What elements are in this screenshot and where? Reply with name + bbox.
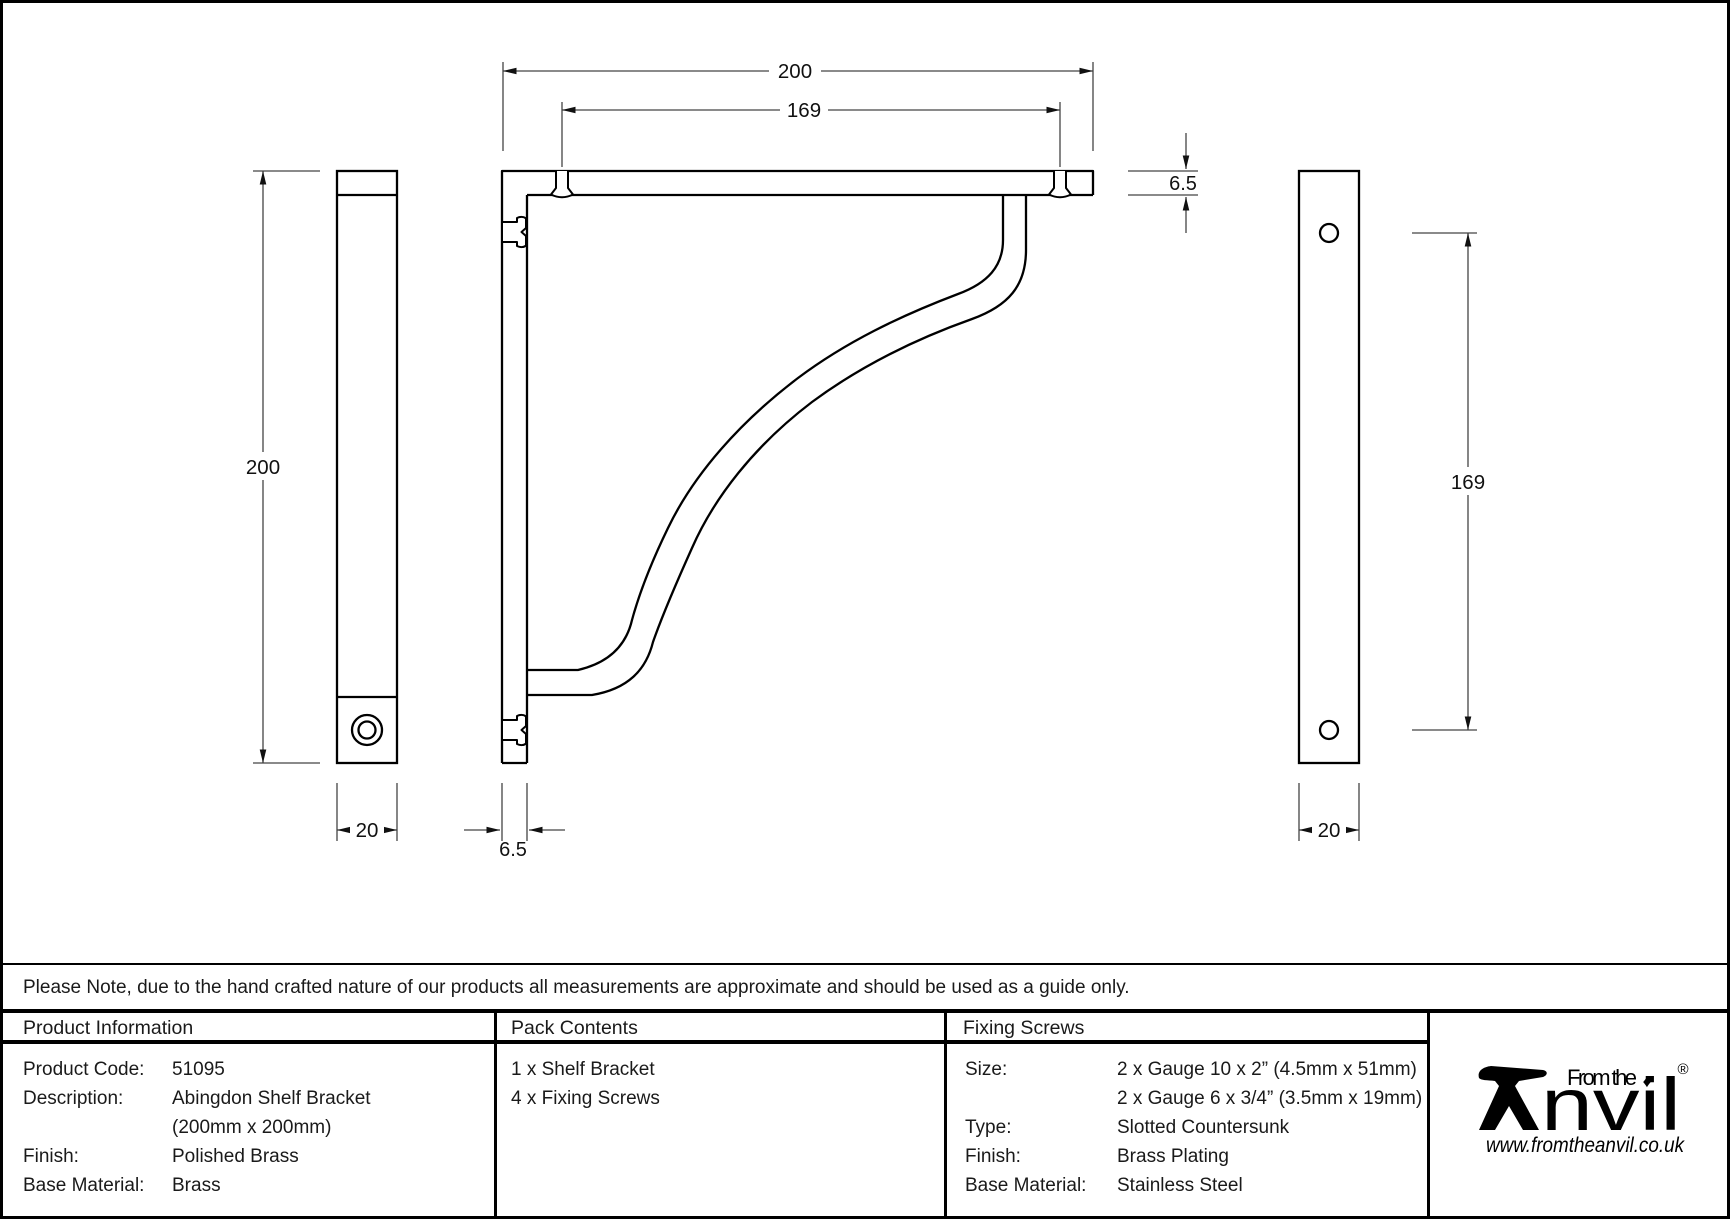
back-view-hole-bottom — [1320, 721, 1338, 739]
measurement-note: Please Note, due to the hand crafted nat… — [3, 963, 1727, 1011]
row-value: Brass Plating — [1117, 1142, 1229, 1171]
wall-screw-bottom — [502, 715, 526, 745]
row-label: Size: — [965, 1055, 1117, 1084]
dim-side-width-label: 20 — [356, 819, 379, 842]
list-item: 1 x Shelf Bracket — [511, 1055, 931, 1084]
dim-side-height-label: 200 — [246, 456, 280, 479]
top-screw-left — [551, 171, 573, 197]
fixing-screws-cell: Size:2 x Gauge 10 x 2” (4.5mm x 51mm) 2 … — [965, 1055, 1423, 1200]
pack-contents-cell: 1 x Shelf Bracket 4 x Fixing Screws — [511, 1055, 931, 1113]
list-item: 4 x Fixing Screws — [511, 1084, 931, 1113]
back-view-hole-top — [1320, 224, 1338, 242]
row-value: 2 x Gauge 6 x 3/4” (3.5mm x 19mm) — [1117, 1084, 1422, 1113]
dim-side-height: 200 — [237, 171, 320, 763]
dimensions: 200 169 6.5 6.5 200 — [237, 58, 1494, 861]
row-label: Product Code: — [23, 1055, 172, 1084]
dim-arm-thickness: 6.5 — [1128, 133, 1198, 233]
from-the-anvil-logo: From the ♦ ® nvil www.fromtheanvil.co.uk — [1455, 1056, 1705, 1164]
side-view-washer-inner — [359, 722, 376, 739]
row-label: Base Material: — [965, 1171, 1117, 1200]
brace-inner-curve — [527, 196, 1003, 670]
table-row: Type:Slotted Countersunk — [965, 1113, 1423, 1142]
wall-screw-top — [502, 217, 526, 247]
table-row: Product Code:51095 — [23, 1055, 488, 1084]
row-value: (200mm x 200mm) — [172, 1113, 331, 1142]
side-view-washer-outer — [352, 715, 382, 745]
front-view — [502, 171, 1093, 763]
measurement-note-text: Please Note, due to the hand crafted nat… — [23, 977, 1130, 999]
product-information-cell: Product Code:51095 Description:Abingdon … — [23, 1055, 488, 1200]
table-header-border — [3, 1040, 1427, 1044]
header-fixing-screws: Fixing Screws — [963, 1016, 1084, 1040]
logo-url[interactable]: www.fromtheanvil.co.uk — [1486, 1134, 1685, 1157]
divider-col2-col3 — [944, 1011, 947, 1216]
row-value: 2 x Gauge 10 x 2” (4.5mm x 51mm) — [1117, 1055, 1417, 1084]
table-row: Size:2 x Gauge 10 x 2” (4.5mm x 51mm) — [965, 1055, 1423, 1084]
dim-upright-thickness-label: 6.5 — [499, 839, 527, 861]
row-value: Slotted Countersunk — [1117, 1113, 1289, 1142]
dim-back-width-label: 20 — [1318, 819, 1341, 842]
divider-col3-logo — [1427, 1011, 1430, 1216]
row-label: Type: — [965, 1113, 1117, 1142]
dim-front-screw-spacing-label: 169 — [787, 99, 821, 122]
dim-arm-thickness-label: 6.5 — [1169, 173, 1197, 195]
row-value: Stainless Steel — [1117, 1171, 1243, 1200]
header-product-information: Product Information — [23, 1016, 193, 1040]
row-label: Base Material: — [23, 1171, 172, 1200]
row-value: 51095 — [172, 1055, 225, 1084]
table-row: Description:Abingdon Shelf Bracket — [23, 1084, 488, 1113]
dim-back-width: 20 — [1299, 783, 1359, 842]
dim-back-hole-spacing: 169 — [1412, 233, 1494, 730]
side-view — [337, 171, 397, 763]
technical-drawing: 200 169 6.5 6.5 200 — [0, 0, 1730, 965]
table-row: Base Material:Brass — [23, 1171, 488, 1200]
row-value: Brass — [172, 1171, 221, 1200]
header-pack-contents: Pack Contents — [511, 1016, 638, 1040]
top-screw-right — [1049, 171, 1071, 197]
dim-front-width-label: 200 — [778, 60, 812, 83]
table-top-border — [3, 1009, 1727, 1013]
back-view — [1299, 171, 1359, 763]
table-row: (200mm x 200mm) — [23, 1113, 488, 1142]
table-row: 2 x Gauge 6 x 3/4” (3.5mm x 19mm) — [965, 1084, 1423, 1113]
row-label: Description: — [23, 1084, 172, 1113]
row-label: Finish: — [23, 1142, 172, 1171]
row-value: Abingdon Shelf Bracket — [172, 1084, 371, 1113]
row-label: Finish: — [965, 1142, 1117, 1171]
brace-outer-curve — [527, 196, 1026, 695]
dim-front-screw-spacing: 169 — [562, 97, 1060, 167]
anvil-icon — [1479, 1066, 1547, 1130]
dim-back-hole-spacing-label: 169 — [1451, 471, 1485, 494]
table-row: Finish:Polished Brass — [23, 1142, 488, 1171]
table-row: Base Material:Stainless Steel — [965, 1171, 1423, 1200]
dim-upright-thickness: 6.5 — [464, 783, 565, 861]
table-row: Finish:Brass Plating — [965, 1142, 1423, 1171]
dim-side-width: 20 — [337, 783, 397, 842]
row-value: Polished Brass — [172, 1142, 299, 1171]
divider-col1-col2 — [494, 1011, 497, 1216]
